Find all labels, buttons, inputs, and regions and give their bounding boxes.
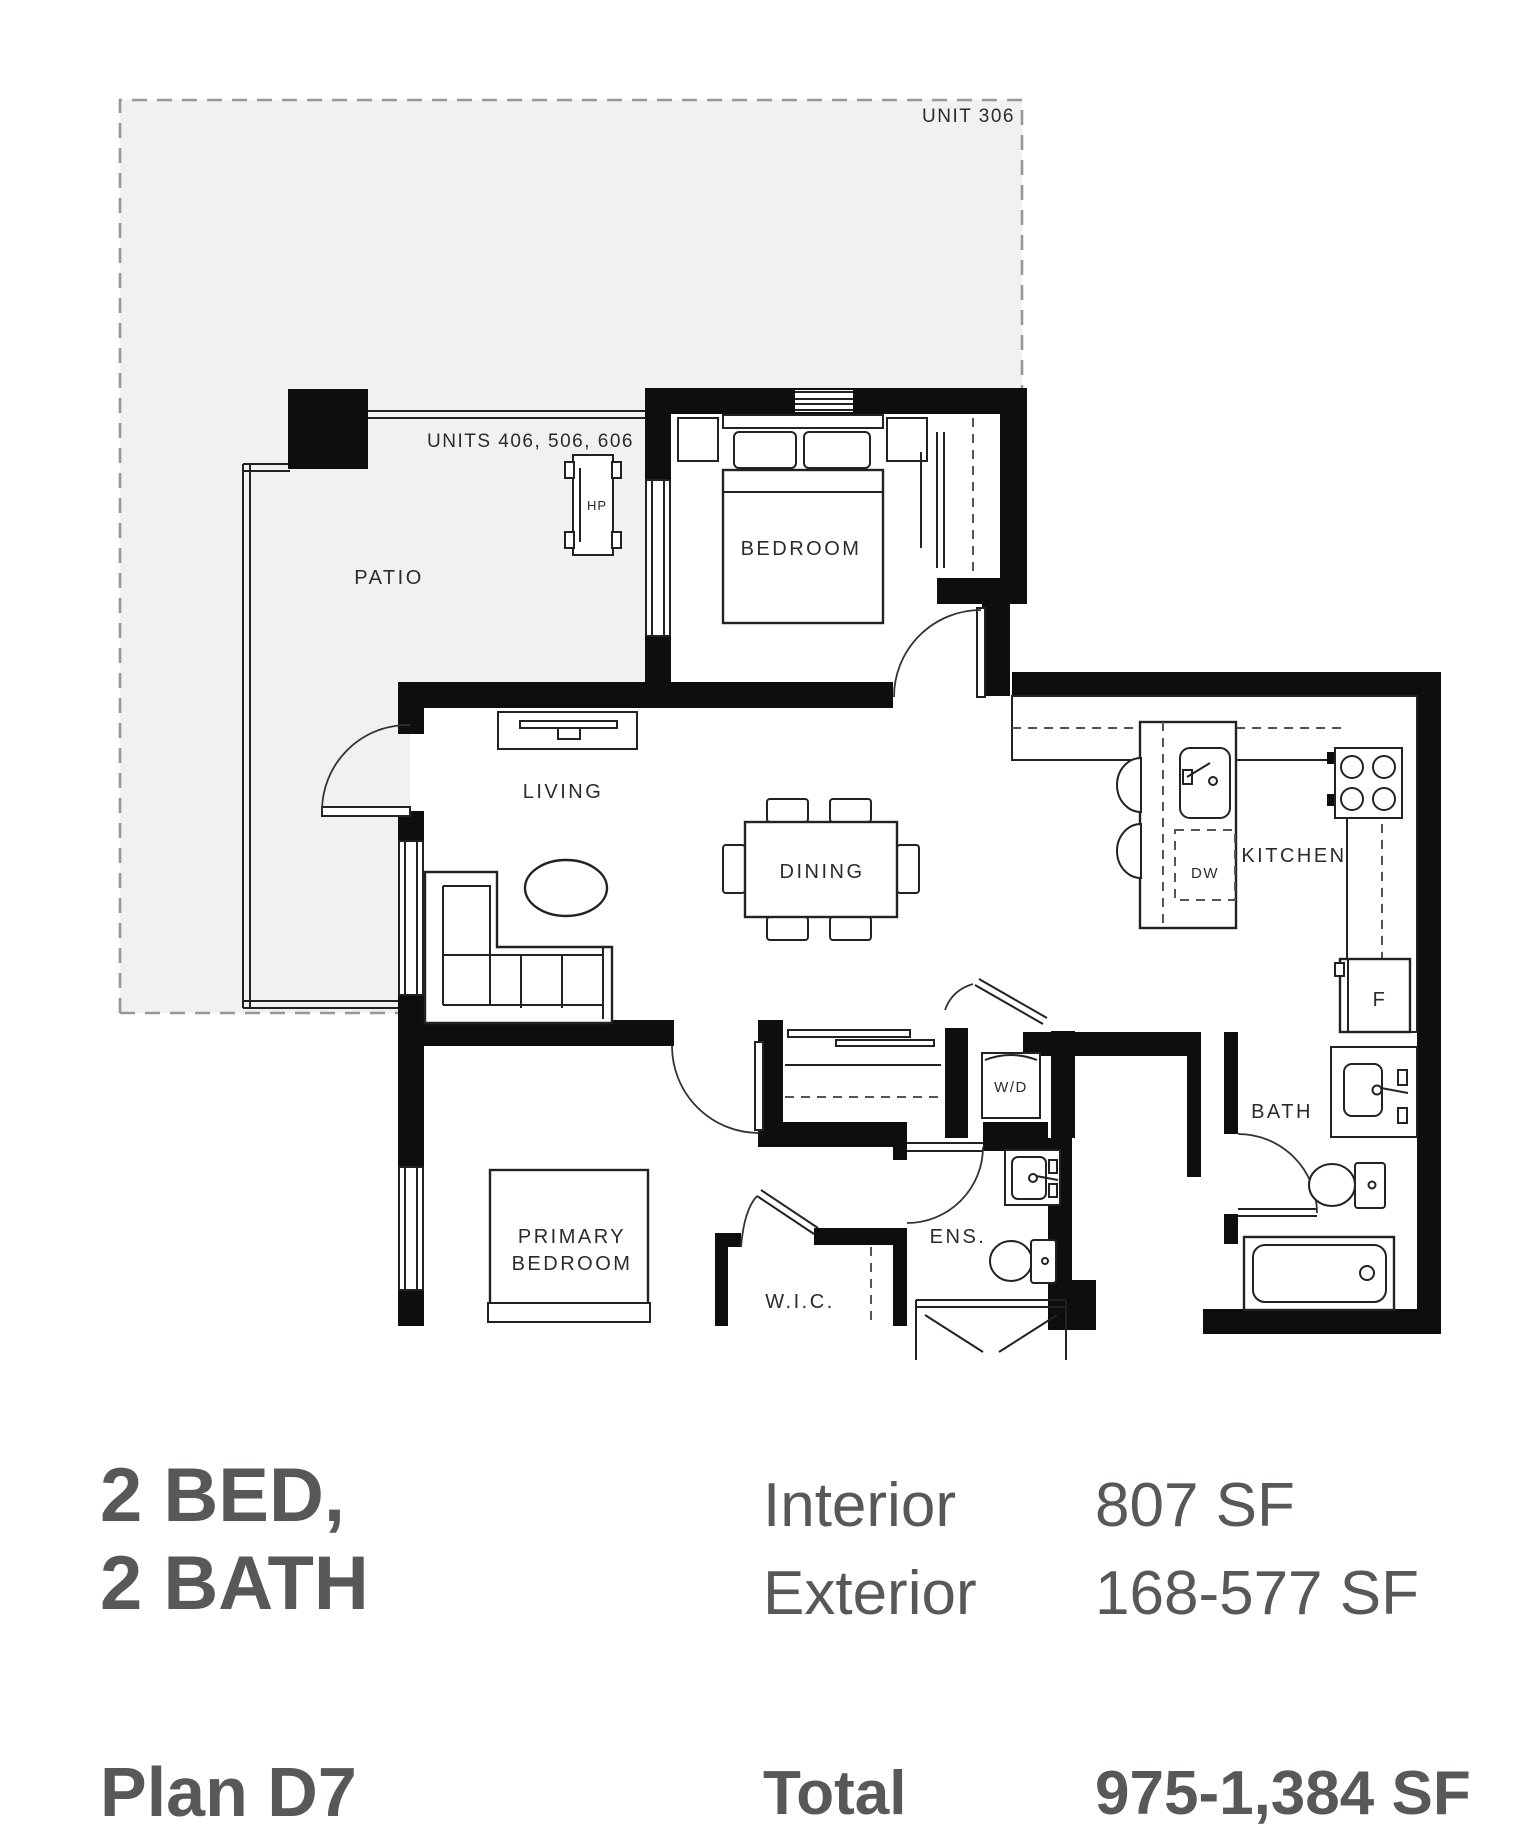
primary-bedroom-window — [398, 1167, 424, 1290]
heat-pump-label: HP — [587, 498, 607, 513]
ensuite-shower — [916, 1300, 1066, 1360]
pillow-right — [804, 432, 870, 468]
interior-label: Interior — [763, 1470, 956, 1541]
nightstand-left — [678, 418, 718, 461]
bed-bath-headline: 2 BED, 2 BATH — [100, 1452, 369, 1628]
dining-label: DINING — [780, 861, 865, 883]
total-value: 975-1,384 SF — [1095, 1758, 1471, 1829]
ensuite-toilet — [990, 1240, 1056, 1283]
tv-console — [498, 712, 637, 749]
dishwasher-label: DW — [1191, 865, 1219, 882]
wic-label: W.I.C. — [765, 1291, 834, 1313]
wd-closet-door — [945, 979, 1047, 1024]
chair — [897, 845, 919, 893]
bedroom-top-window — [795, 390, 853, 412]
bed-line: 2 BED, — [100, 1452, 369, 1540]
primary-bedroom-door — [672, 1042, 763, 1133]
chair — [767, 799, 808, 822]
bedroom-door — [894, 608, 985, 697]
primary-bedroom-label-line1: PRIMARY — [518, 1226, 626, 1248]
patio-label: PATIO — [354, 567, 424, 589]
total-label: Total — [763, 1758, 907, 1829]
kitchen-island: DW — [1140, 722, 1236, 928]
chair — [767, 917, 808, 940]
stove — [1327, 748, 1402, 818]
ensuite-label: ENS. — [930, 1226, 987, 1248]
primary-bed-headboard — [488, 1303, 650, 1322]
ensuite-fixtures — [916, 1150, 1066, 1360]
ensuite-sink — [1005, 1150, 1060, 1205]
bath-fixtures — [1244, 1047, 1417, 1310]
plan-name: Plan D7 — [100, 1752, 357, 1832]
exterior-label: Exterior — [763, 1558, 977, 1629]
bedroom-furniture — [678, 415, 973, 623]
floorplan: HP UNIT 306 UNITS 406, 506, 606 PATIO — [0, 0, 1528, 1430]
bath-door — [1238, 1134, 1317, 1216]
washer-dryer: W/D — [982, 1053, 1040, 1118]
bedroom-label: BEDROOM — [741, 538, 862, 560]
unit-306-note: UNIT 306 — [922, 106, 1015, 127]
living-window — [398, 841, 424, 995]
bed-headboard — [723, 415, 883, 428]
heat-pump: HP — [565, 455, 621, 555]
chair — [830, 917, 871, 940]
interior-value: 807 SF — [1095, 1470, 1295, 1541]
living-label: LIVING — [523, 781, 604, 803]
patio-column — [288, 389, 368, 469]
kitchen-fixtures: F DW — [1012, 696, 1417, 1032]
bedroom-window — [645, 480, 671, 636]
chair — [830, 799, 871, 822]
washer-dryer-label: W/D — [994, 1079, 1028, 1096]
bath-toilet — [1309, 1163, 1385, 1208]
exterior-value: 168-577 SF — [1095, 1558, 1419, 1629]
fridge: F — [1335, 959, 1410, 1032]
bar-stools — [1117, 758, 1141, 878]
summary-panel: 2 BED, 2 BATH Plan D7 Interior 807 SF Ex… — [0, 1430, 1528, 1824]
coffee-table — [525, 860, 607, 916]
wic-door — [741, 1190, 818, 1247]
fridge-label: F — [1373, 989, 1388, 1011]
primary-bedroom-label-line2: BEDROOM — [512, 1253, 633, 1275]
pillow-left — [734, 432, 796, 468]
bathtub — [1244, 1237, 1394, 1310]
kitchen-label: KITCHEN — [1241, 845, 1346, 867]
bedroom-closet — [921, 418, 973, 576]
bath-line: 2 BATH — [100, 1540, 369, 1628]
living-furniture — [425, 712, 637, 1023]
hall-closet — [785, 1030, 941, 1097]
chair — [723, 845, 745, 893]
units-406-506-606-note: UNITS 406, 506, 606 — [427, 431, 634, 452]
bath-label: BATH — [1251, 1101, 1313, 1123]
ensuite-door — [907, 1143, 983, 1223]
bath-sink — [1331, 1047, 1417, 1137]
